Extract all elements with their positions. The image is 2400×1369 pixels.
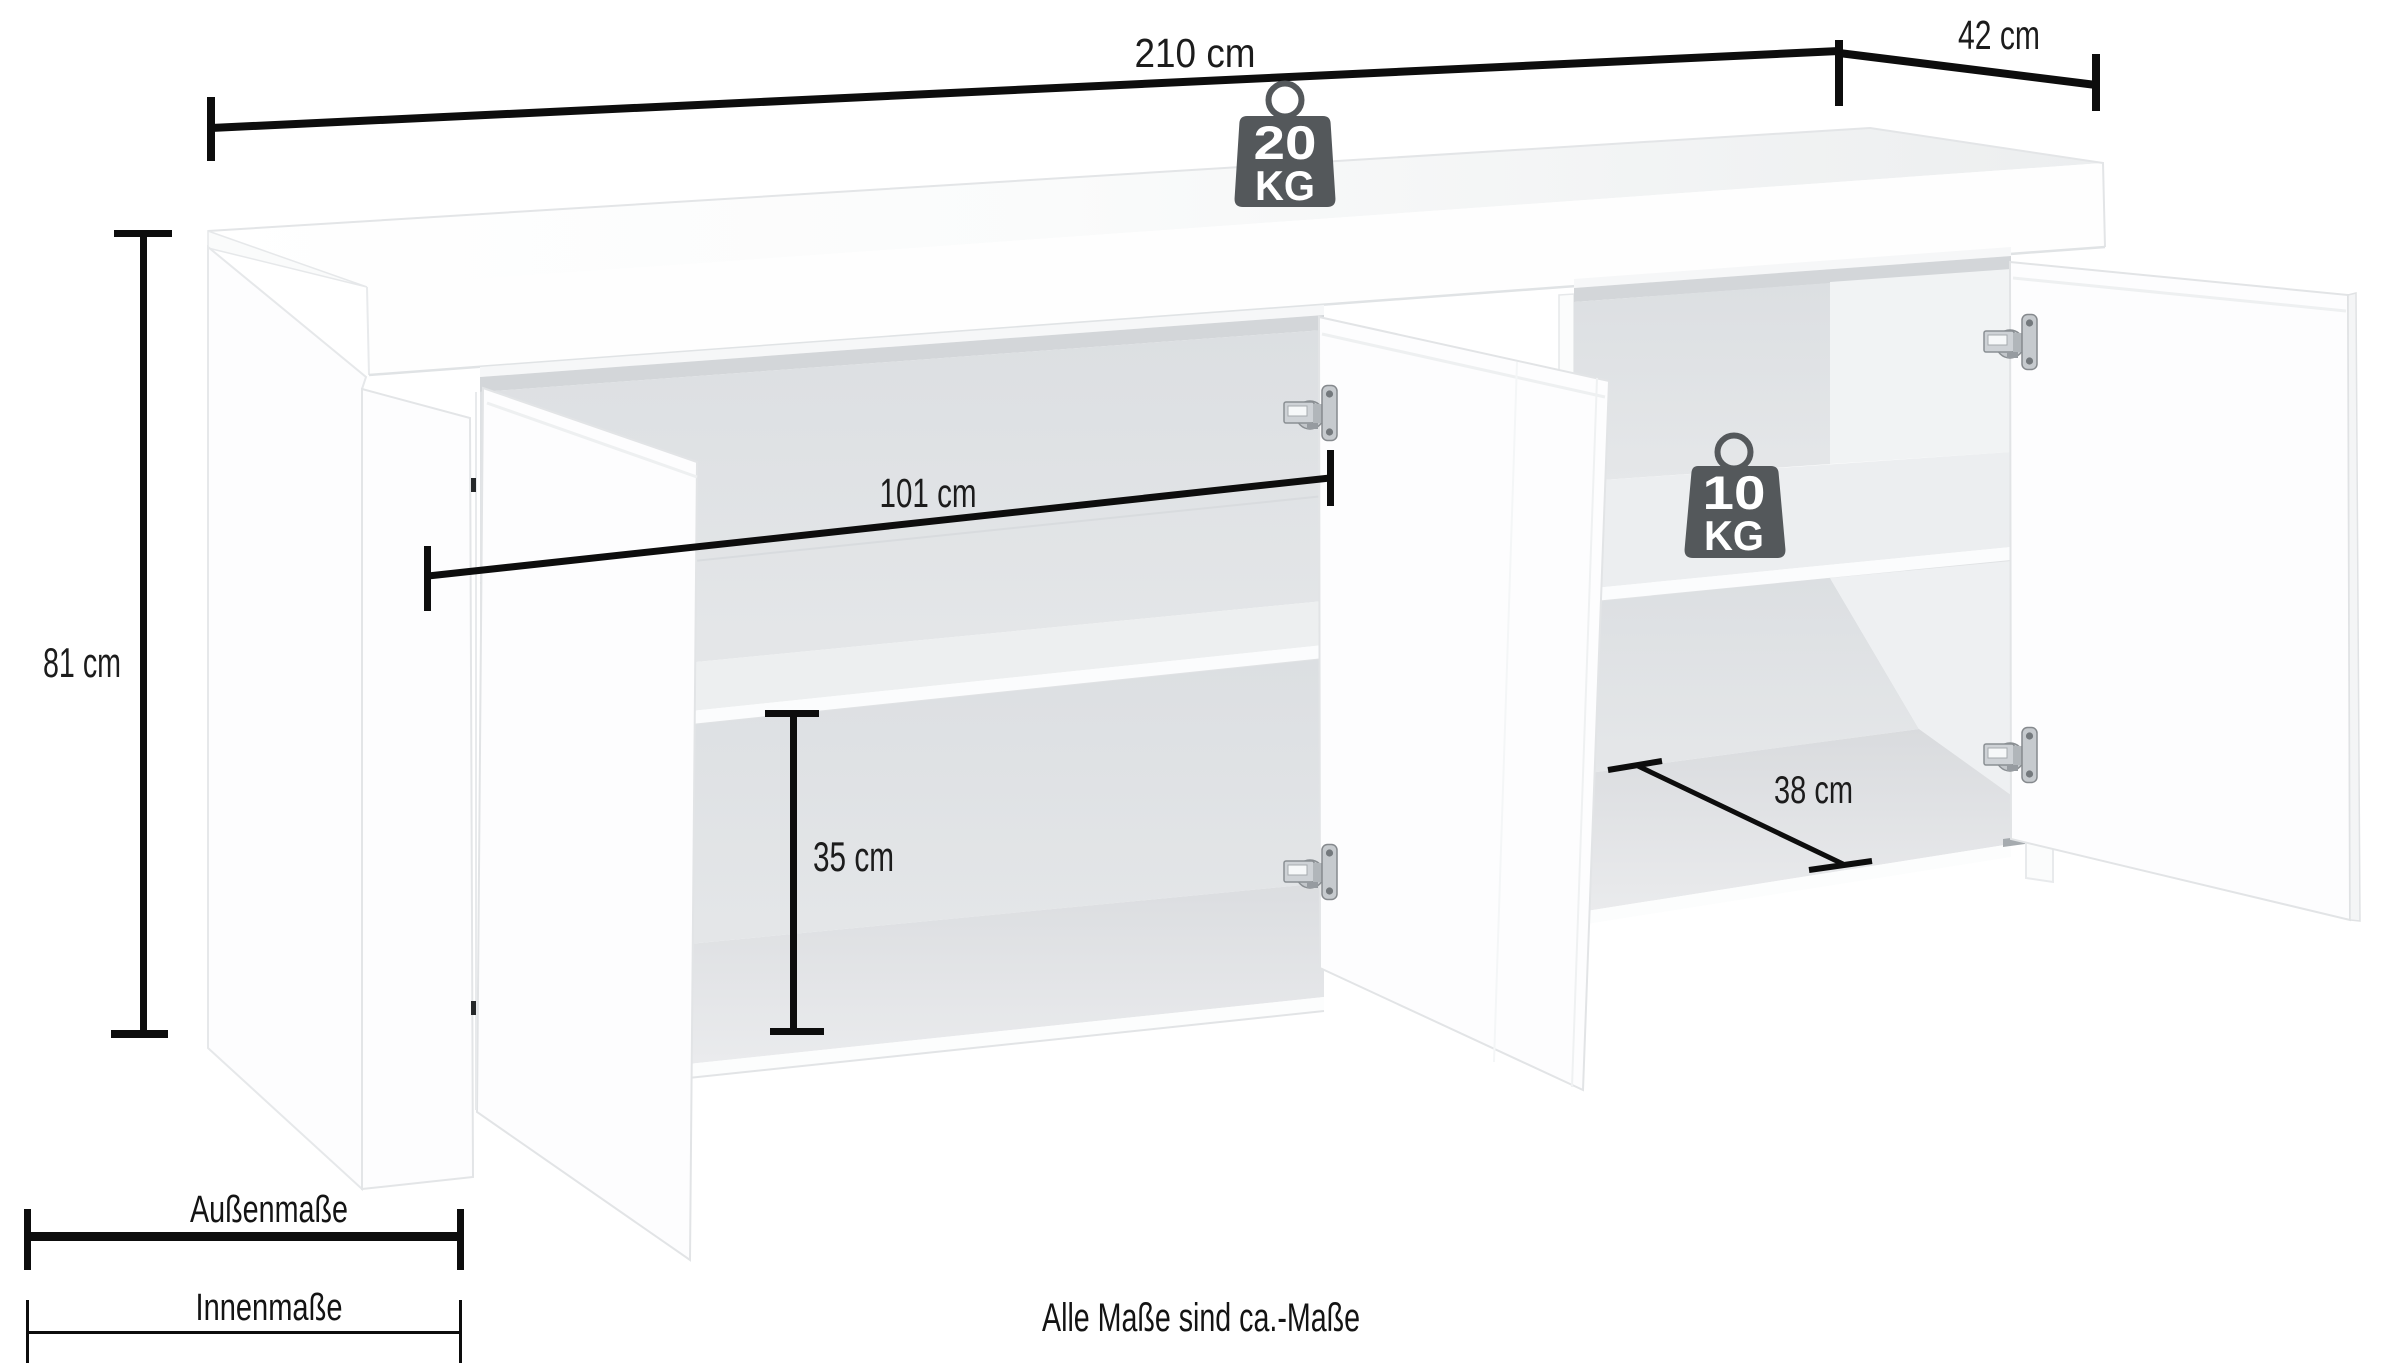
svg-text:210 cm: 210 cm (1135, 30, 1256, 76)
svg-text:KG: KG (1255, 162, 1315, 209)
svg-text:Innenmaße: Innenmaße (196, 1287, 343, 1329)
svg-text:Außenmaße: Außenmaße (190, 1189, 348, 1231)
svg-text:35 cm: 35 cm (813, 833, 894, 880)
svg-text:KG: KG (1704, 512, 1764, 559)
svg-text:Alle Maße sind ca.-Maße: Alle Maße sind ca.-Maße (1042, 1296, 1360, 1340)
svg-text:81 cm: 81 cm (43, 639, 121, 686)
svg-text:42 cm: 42 cm (1958, 12, 2040, 58)
svg-text:101 cm: 101 cm (880, 470, 977, 516)
svg-text:38 cm: 38 cm (1774, 769, 1853, 812)
